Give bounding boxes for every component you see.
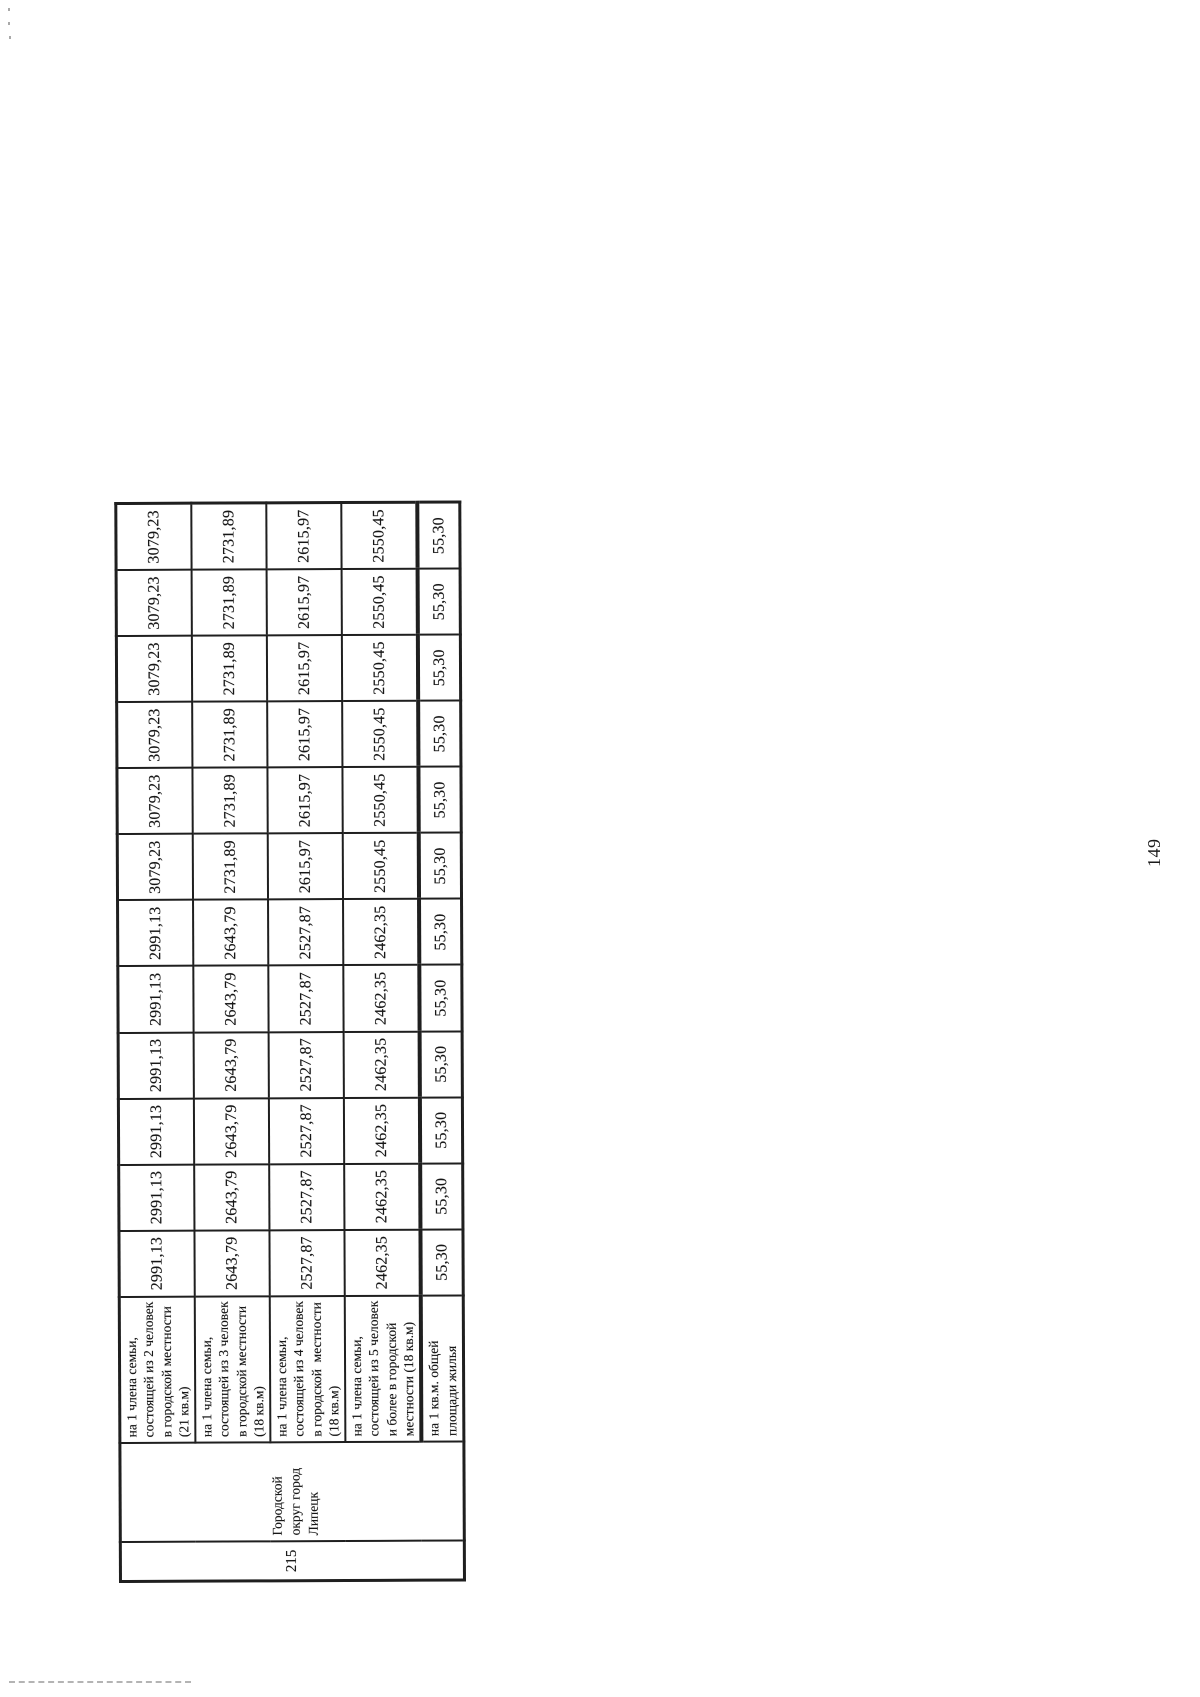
value-cell: 2550,45 (342, 569, 418, 635)
value-cell: 2991,13 (118, 966, 194, 1032)
value-cell: 2527,87 (268, 966, 343, 1032)
value-cell: 2731,89 (191, 503, 266, 570)
value-cell: 3079,23 (116, 570, 192, 636)
value-cell: 55,30 (420, 1031, 462, 1097)
value-cell: 2991,13 (118, 900, 194, 966)
scan-artifact-dashed-line (9, 1681, 191, 1683)
value-cell: 2991,13 (118, 1032, 194, 1098)
value-cell: 2643,79 (193, 966, 268, 1032)
value-cell: 2643,79 (193, 900, 268, 966)
value-cell: 2527,87 (268, 899, 343, 965)
value-cell: 2991,13 (119, 1164, 195, 1230)
value-cell: 2643,79 (194, 1098, 269, 1164)
value-cell: 2731,89 (193, 834, 268, 900)
value-cell: 55,30 (419, 899, 461, 965)
value-cell: 55,30 (419, 767, 461, 833)
row-label-cell: на 1 члена семьи, состоящей из 2 человек… (119, 1296, 195, 1443)
scan-dot (9, 36, 11, 39)
value-cell: 2527,87 (269, 1164, 344, 1230)
value-cell: 55,30 (420, 1097, 462, 1163)
table-row: на 1 члена семьи, состоящей из 3 человек… (191, 503, 271, 1581)
value-cell: 2527,87 (269, 1032, 344, 1098)
value-cell: 2615,97 (267, 701, 342, 767)
value-cell: 2462,35 (344, 1163, 420, 1229)
rotated-table-container: 215Городской округ город Липецкна 1 член… (114, 500, 465, 1583)
value-cell: 55,30 (421, 1229, 463, 1295)
value-cell: 55,30 (418, 569, 460, 635)
value-cell: 2991,13 (119, 1230, 195, 1296)
row-label-cell: на 1 члена семьи, состоящей из 4 человек… (270, 1296, 346, 1443)
value-cell: 3079,23 (117, 834, 193, 900)
scan-dot (8, 22, 10, 25)
scan-dot (8, 8, 10, 11)
table-row: на 1 кв.м. общей площади жилья55,3055,30… (418, 502, 465, 1580)
value-cell: 3079,23 (116, 503, 192, 570)
value-cell: 55,30 (418, 635, 460, 701)
value-cell: 2527,87 (269, 1098, 344, 1164)
table-row: 215Городской округ город Липецкна 1 член… (116, 503, 196, 1581)
row-label-cell: на 1 члена семьи, состоящей из 5 человек… (345, 1295, 422, 1442)
value-cell: 2550,45 (341, 502, 417, 569)
scan-artifact-dots (8, 8, 12, 42)
value-cell: 2991,13 (118, 1098, 194, 1164)
value-cell: 2550,45 (342, 635, 418, 701)
value-cell: 3079,23 (117, 768, 193, 834)
value-cell: 2615,97 (268, 767, 343, 833)
row-number-cell: 215 (120, 1541, 464, 1582)
value-cell: 2643,79 (194, 1164, 269, 1230)
value-cell: 2615,97 (267, 635, 342, 701)
row-label-cell: на 1 кв.м. общей площади жилья (421, 1295, 464, 1442)
scanned-page: 215Городской округ город Липецкна 1 член… (0, 0, 1200, 1697)
value-cell: 55,30 (420, 965, 462, 1031)
territory-cell: Городской округ город Липецк (120, 1442, 464, 1542)
value-cell: 2550,45 (342, 701, 418, 767)
value-cell: 2462,35 (345, 1229, 421, 1295)
value-cell: 2462,35 (344, 1097, 420, 1163)
value-cell: 55,30 (419, 833, 461, 899)
value-cell: 2615,97 (267, 569, 342, 635)
value-cell: 2550,45 (343, 833, 419, 899)
value-cell: 2615,97 (266, 503, 341, 570)
value-cell: 3079,23 (117, 702, 193, 768)
value-cell: 2462,35 (343, 899, 419, 965)
value-cell: 2731,89 (192, 636, 267, 702)
value-cell: 2550,45 (343, 767, 419, 833)
row-label-cell: на 1 члена семьи, состоящей из 3 человек… (195, 1296, 271, 1443)
value-cell: 55,30 (420, 1163, 462, 1229)
value-cell: 55,30 (418, 701, 460, 767)
value-cell: 2527,87 (270, 1230, 345, 1296)
table-row: на 1 члена семьи, состоящей из 5 человек… (341, 502, 422, 1580)
value-cell: 2462,35 (343, 965, 419, 1031)
value-cell: 2731,89 (192, 569, 267, 635)
housing-cost-table: 215Городской округ город Липецкна 1 член… (114, 500, 465, 1583)
value-cell: 2731,89 (193, 768, 268, 834)
value-cell: 55,30 (418, 502, 460, 569)
housing-cost-table-body: 215Городской округ город Липецкна 1 член… (116, 502, 464, 1581)
value-cell: 2462,35 (344, 1031, 420, 1097)
value-cell: 3079,23 (116, 636, 192, 702)
value-cell: 2643,79 (194, 1032, 269, 1098)
value-cell: 2615,97 (268, 833, 343, 899)
value-cell: 2731,89 (192, 702, 267, 768)
page-number: 149 (1144, 839, 1165, 868)
table-row: на 1 члена семьи, состоящей из 4 человек… (266, 503, 346, 1581)
value-cell: 2643,79 (195, 1230, 270, 1296)
